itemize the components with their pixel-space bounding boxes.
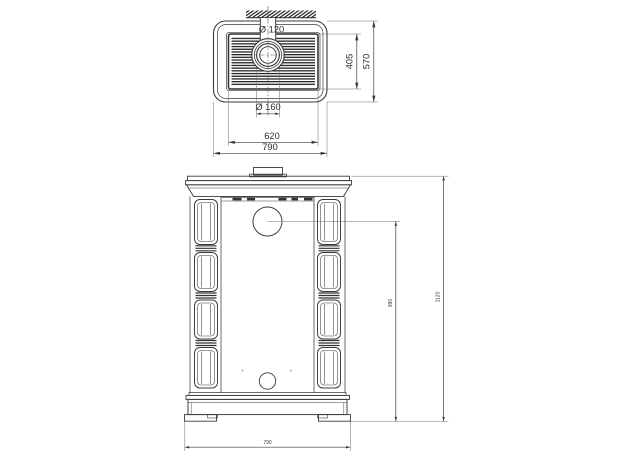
dimension-grille-depth: 405 <box>318 34 361 89</box>
tile-joint <box>319 293 340 298</box>
tile-joint <box>196 293 217 298</box>
tile <box>318 200 341 245</box>
dimension-grille-width: 620 <box>229 90 319 147</box>
dim-label-front-width: 790 <box>263 440 272 446</box>
tile <box>195 348 218 389</box>
dim-label-flue-height: 990 <box>388 299 394 308</box>
tile-joint <box>319 341 340 346</box>
base-plinth <box>185 393 351 422</box>
dimension-front-width: 790 <box>185 421 351 451</box>
front-view: 990 1120 790 <box>185 168 449 452</box>
right-tile-column <box>318 200 341 389</box>
technical-drawing-canvas: Ø 120 Ø 160 620 790 405 <box>0 0 624 460</box>
cornice <box>186 176 352 196</box>
dim-label-collar-diameter: Ø 160 <box>255 102 280 112</box>
dim-label-grille-width: 620 <box>264 131 280 141</box>
flue-stub <box>250 168 287 177</box>
top-view: Ø 120 Ø 160 620 790 405 <box>214 6 379 157</box>
dim-label-grille-depth: 405 <box>345 54 355 70</box>
wall-hatch <box>246 11 316 18</box>
dim-label-overall-width: 790 <box>262 142 278 152</box>
tile <box>318 253 341 292</box>
tile <box>318 300 341 339</box>
tile-joint <box>196 341 217 346</box>
tile <box>195 253 218 292</box>
tile <box>318 348 341 389</box>
air-control-circle <box>259 373 275 389</box>
stove-dimension-drawing: Ø 120 Ø 160 620 790 405 <box>0 0 624 460</box>
panel-dot <box>290 370 292 372</box>
panel-dot <box>242 370 244 372</box>
dim-label-overall-depth: 570 <box>362 54 372 70</box>
dimension-overall-height: 1120 <box>351 176 449 421</box>
tile <box>195 300 218 339</box>
left-tile-column <box>195 200 218 389</box>
panel-top-vents <box>221 197 314 201</box>
tile-joint <box>319 246 340 251</box>
dim-label-pipe-diameter: Ø 120 <box>259 25 284 35</box>
dim-label-overall-height: 1120 <box>436 291 442 302</box>
tile-joint <box>196 246 217 251</box>
tile <box>195 200 218 245</box>
